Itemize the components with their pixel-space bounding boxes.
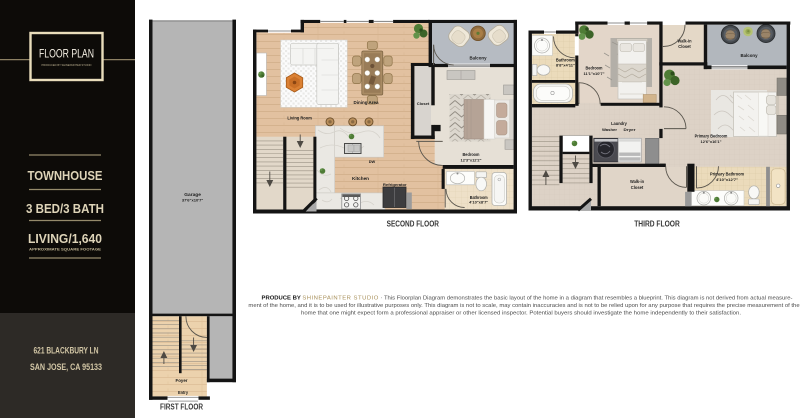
svg-text:621 BLACKBURY LN: 621 BLACKBURY LN (34, 346, 99, 357)
svg-text:Closet: Closet (678, 44, 691, 49)
svg-text:4'10"x12'7": 4'10"x12'7" (716, 177, 738, 182)
svg-text:Walk-in: Walk-in (630, 179, 644, 184)
svg-text:12'6"x16'1": 12'6"x16'1" (701, 139, 722, 144)
svg-text:ment of the home, and it is to: ment of the home, and it is to be used f… (248, 303, 800, 309)
svg-text:FLOOR PLAN: FLOOR PLAN (39, 49, 94, 61)
svg-text:Foyer: Foyer (176, 378, 188, 383)
svg-text:Refrigerator: Refrigerator (383, 182, 407, 187)
svg-text:Bedroom: Bedroom (586, 66, 603, 71)
svg-text:SECOND FLOOR: SECOND FLOOR (387, 219, 440, 229)
svg-text:4'10"x8'7": 4'10"x8'7" (469, 200, 488, 205)
svg-text:Dining Area: Dining Area (354, 100, 379, 105)
svg-text:LIVING/1,640: LIVING/1,640 (28, 231, 102, 246)
svg-text:11'1"x10'7": 11'1"x10'7" (584, 71, 605, 76)
svg-text:FIRST FLOOR: FIRST FLOOR (160, 401, 204, 411)
svg-text:home that one might expect for: home that one might expect form a profes… (301, 311, 741, 317)
svg-text:TOWNHOUSE: TOWNHOUSE (28, 168, 103, 183)
svg-text:APPROXIMATE SQUARE FOOTAGE: APPROXIMATE SQUARE FOOTAGE (29, 247, 101, 252)
svg-text:Balcony: Balcony (741, 53, 758, 58)
svg-text:Closet: Closet (631, 185, 644, 190)
svg-text:Laundry: Laundry (611, 121, 627, 126)
svg-text:Balcony: Balcony (470, 55, 487, 60)
svg-text:THIRD FLOOR: THIRD FLOOR (634, 219, 680, 229)
svg-text:Entry: Entry (178, 390, 188, 395)
svg-text:PRODUCE BY SHINEPAINTER STUDIO: PRODUCE BY SHINEPAINTER STUDIO · This Fl… (262, 296, 793, 302)
svg-text:37'6"x10'7": 37'6"x10'7" (182, 197, 204, 202)
svg-text:Walk-in: Walk-in (678, 39, 692, 44)
svg-text:Kitchen: Kitchen (352, 176, 369, 181)
svg-text:DW: DW (369, 159, 376, 164)
svg-text:Living Room: Living Room (287, 116, 311, 121)
svg-text:Closet: Closet (417, 101, 430, 106)
svg-text:8'8"x4'11": 8'8"x4'11" (556, 63, 575, 68)
svg-text:Primary Bedroom: Primary Bedroom (695, 134, 728, 139)
svg-text:SAN JOSE, CA 95133: SAN JOSE, CA 95133 (30, 362, 102, 373)
svg-text:Dryer: Dryer (624, 127, 637, 132)
svg-text:PRODUCED BY SHINEPAINTER STUDI: PRODUCED BY SHINEPAINTER STUDIO (42, 63, 92, 67)
svg-text:Primary Bathroom: Primary Bathroom (710, 172, 744, 177)
svg-text:12'3"x12'2": 12'3"x12'2" (461, 157, 482, 162)
svg-text:3 BED/3 BATH: 3 BED/3 BATH (26, 201, 104, 216)
svg-text:Washer: Washer (602, 127, 618, 132)
svg-text:Bedroom: Bedroom (463, 152, 480, 157)
